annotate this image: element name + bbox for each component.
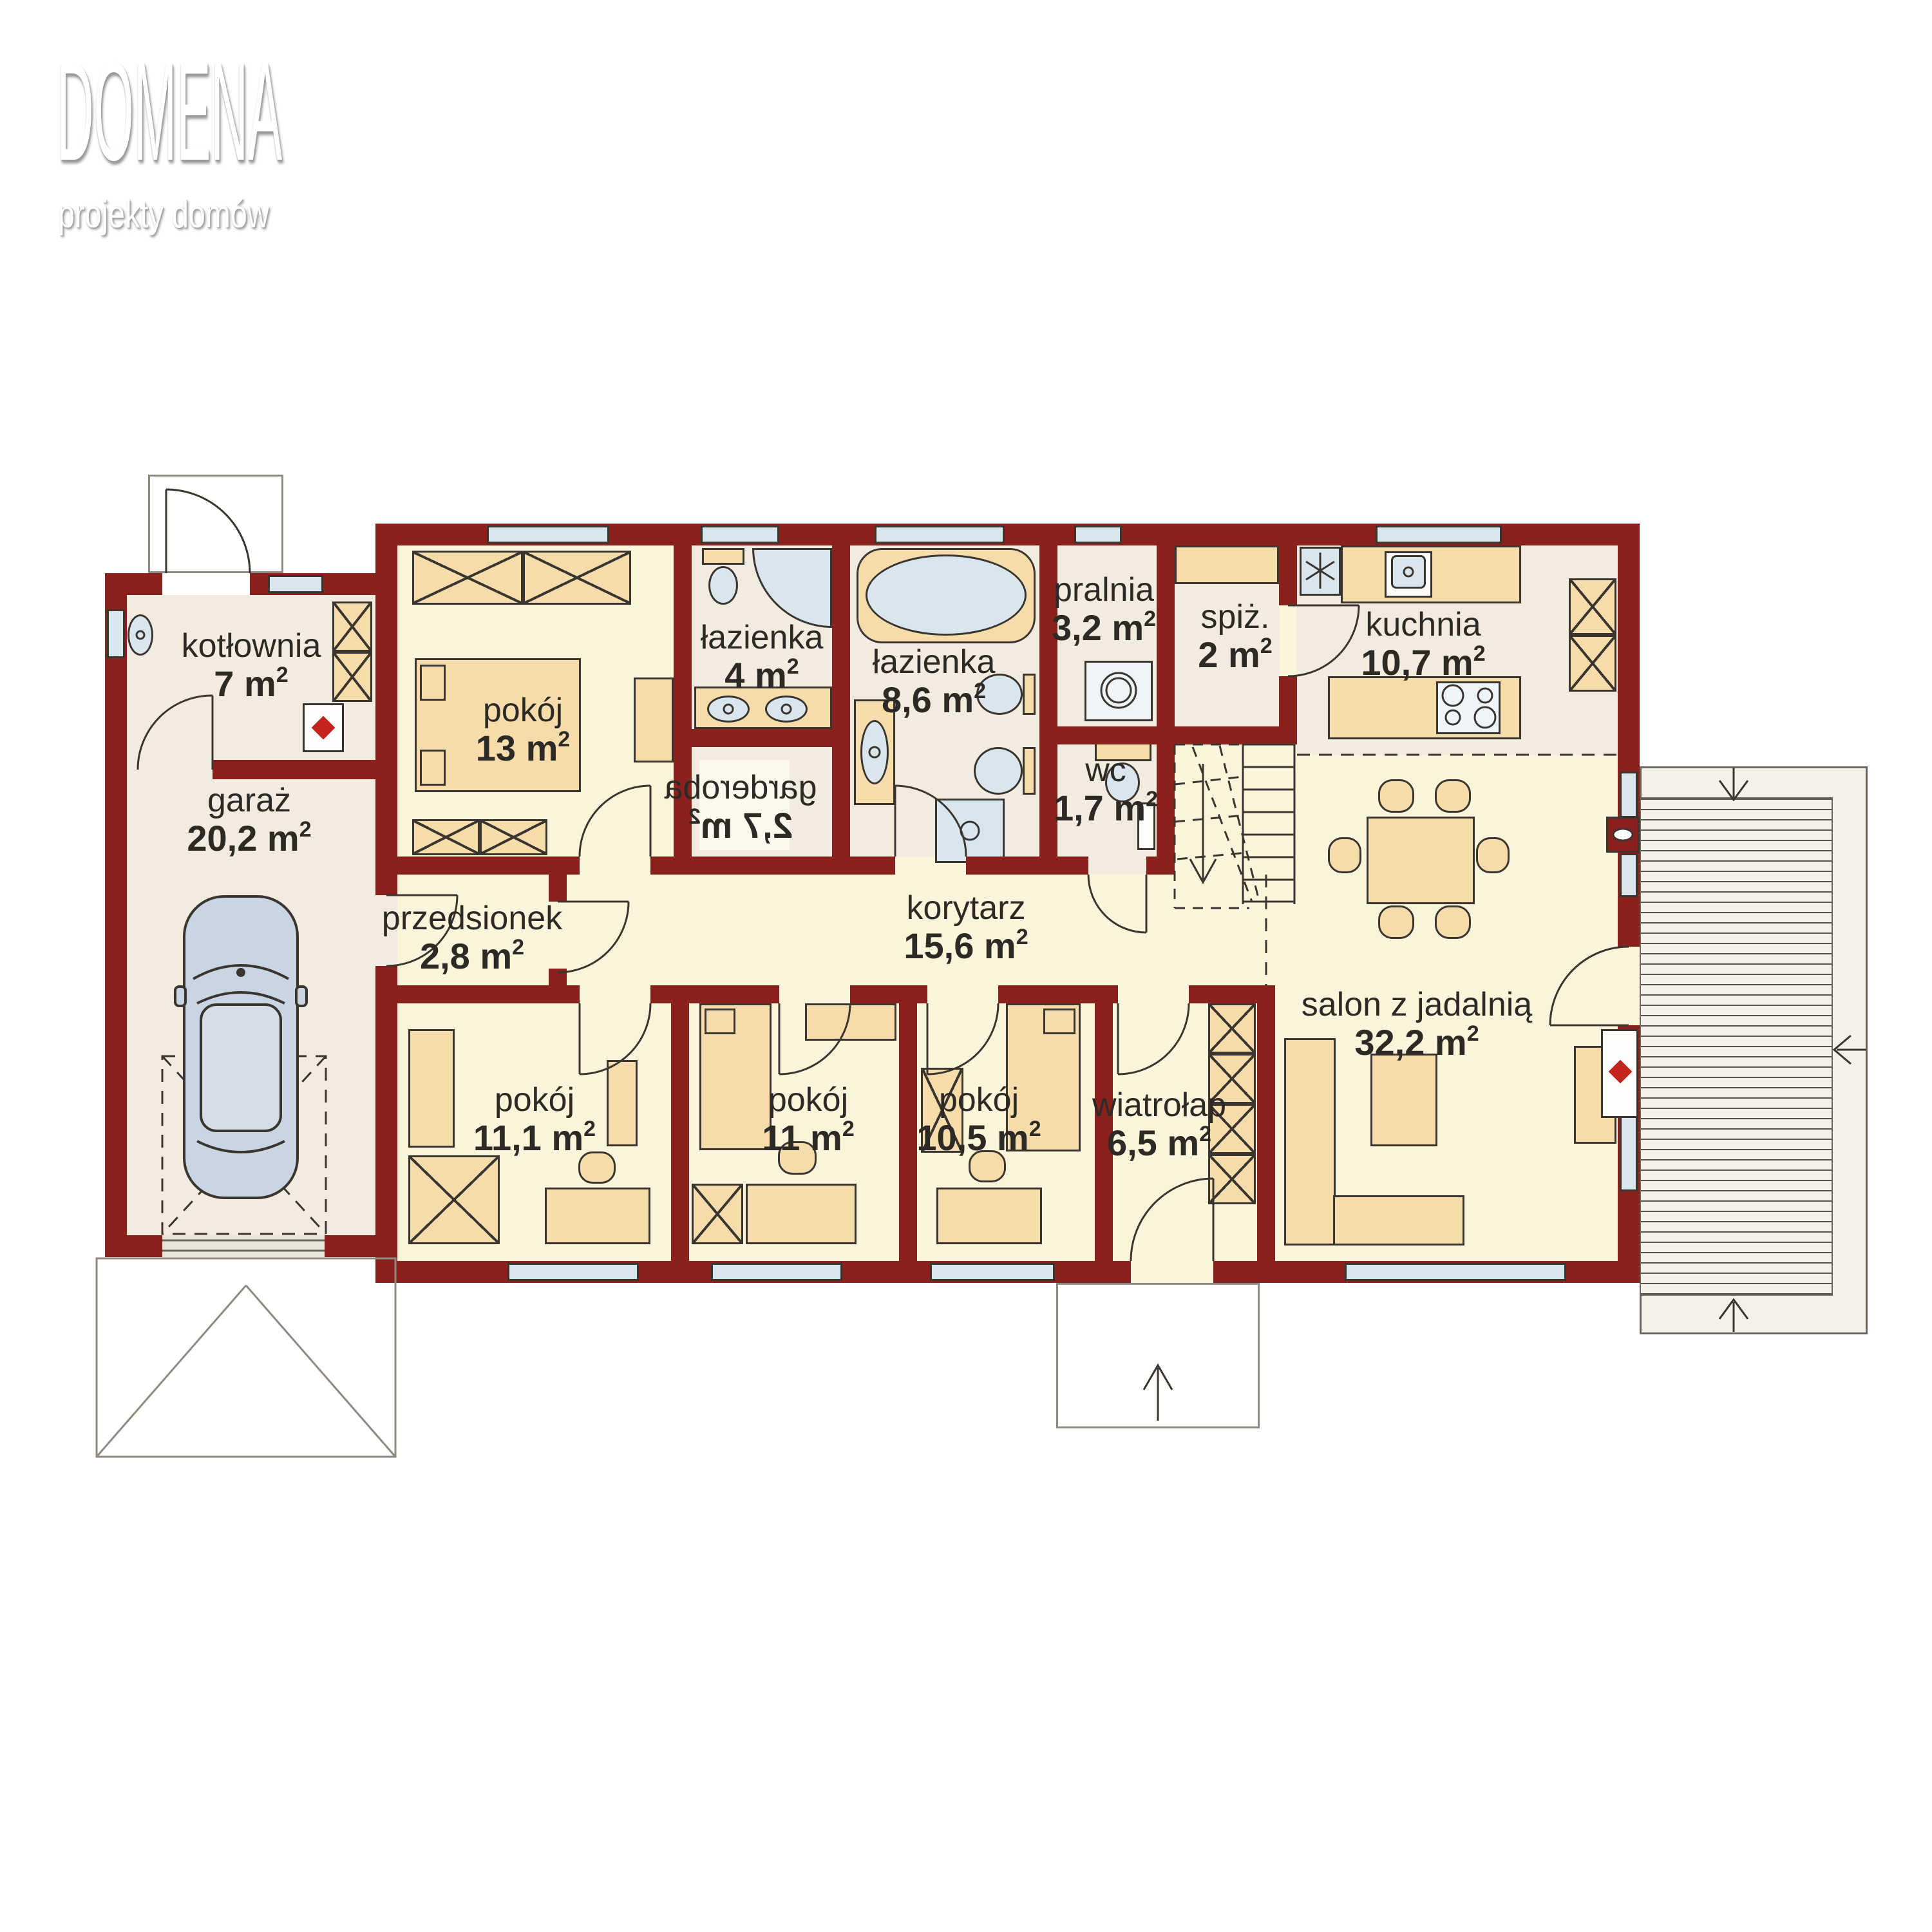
room-area: 10,7 m2 bbox=[1243, 643, 1604, 683]
room-area: 20,2 m2 bbox=[69, 819, 430, 859]
room-area: 15,6 m2 bbox=[786, 926, 1146, 967]
room-area: 32,2 m2 bbox=[1236, 1023, 1597, 1063]
room-label-kuchnia: kuchnia 10,7 m2 bbox=[1243, 607, 1604, 683]
room-area: 1,7 m2 bbox=[925, 788, 1286, 829]
flue-cap bbox=[1613, 829, 1633, 840]
room-name: wc bbox=[925, 752, 1286, 788]
brand-tagline: projekty domów bbox=[58, 192, 269, 236]
room-name: korytarz bbox=[786, 890, 1146, 926]
room-area: 6,5 m2 bbox=[979, 1123, 1340, 1164]
floor-plan: DOMENA projekty domów bbox=[0, 0, 1932, 1932]
room-label-wiatrolap: wiatrołap 6,5 m2 bbox=[979, 1087, 1340, 1164]
room-label-wc: wc 1,7 m2 bbox=[925, 752, 1286, 829]
room-name: kotłownia bbox=[71, 628, 431, 664]
brand-logo: DOMENA projekty domów bbox=[57, 41, 594, 164]
room-area: 8,6 m2 bbox=[753, 680, 1114, 721]
room-name: salon z jadalnią bbox=[1236, 987, 1597, 1023]
room-name: garaż bbox=[69, 782, 430, 819]
room-area: 2,7 m2 bbox=[560, 806, 921, 846]
brand-name: DOMENA bbox=[57, 41, 282, 182]
room-label-garderoba: garderoba 2,7 m2 bbox=[560, 770, 921, 846]
room-label-korytarz: korytarz 15,6 m2 bbox=[786, 890, 1146, 967]
room-label-przedsionek: przedsionek 2,8 m2 bbox=[292, 900, 652, 977]
room-label-salon: salon z jadalnią 32,2 m2 bbox=[1236, 987, 1597, 1063]
snowflake-icon bbox=[1306, 553, 1334, 589]
garage-roof-outline bbox=[97, 1240, 395, 1457]
room-label-garaz: garaż 20,2 m2 bbox=[69, 782, 430, 859]
room-name: wiatrołap bbox=[979, 1087, 1340, 1123]
room-label-pokoj-13: pokój 13 m2 bbox=[343, 692, 703, 769]
room-name: garderoba bbox=[560, 770, 921, 806]
car-icon bbox=[175, 896, 307, 1198]
room-name: kuchnia bbox=[1243, 607, 1604, 643]
room-area: 2,8 m2 bbox=[292, 936, 652, 977]
room-area: 13 m2 bbox=[343, 728, 703, 769]
room-name: przedsionek bbox=[292, 900, 652, 936]
room-name: pokój bbox=[343, 692, 703, 728]
